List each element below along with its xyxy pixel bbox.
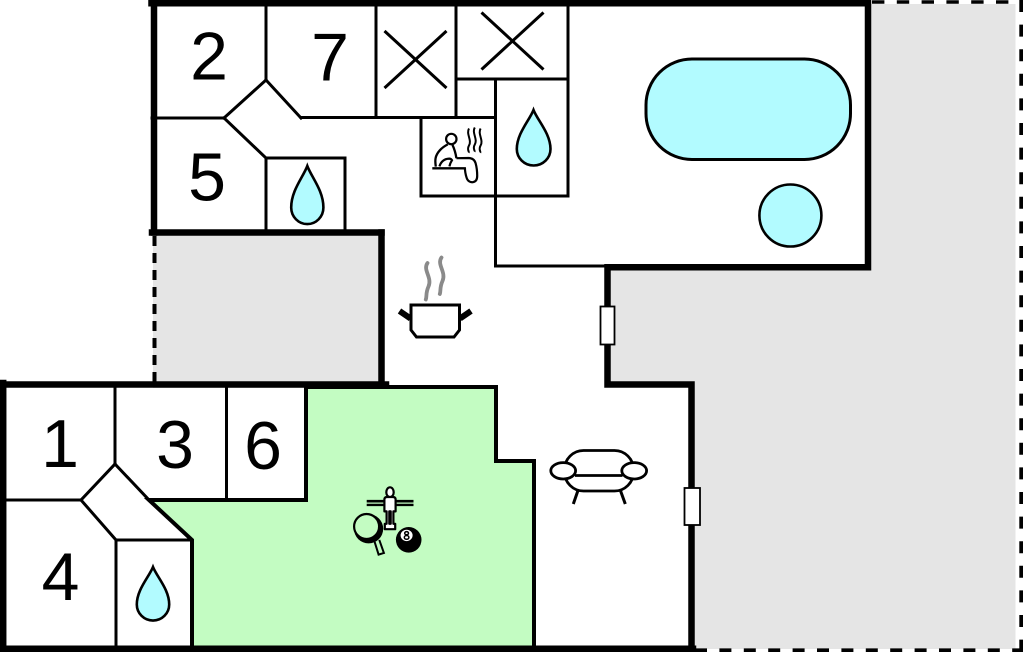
svg-text:4: 4	[42, 539, 80, 615]
svg-text:3: 3	[156, 407, 194, 483]
svg-text:6: 6	[244, 408, 282, 484]
svg-text:5: 5	[188, 140, 226, 216]
svg-text:1: 1	[41, 406, 79, 482]
svg-text:2: 2	[190, 19, 228, 95]
svg-text:7: 7	[311, 20, 349, 96]
